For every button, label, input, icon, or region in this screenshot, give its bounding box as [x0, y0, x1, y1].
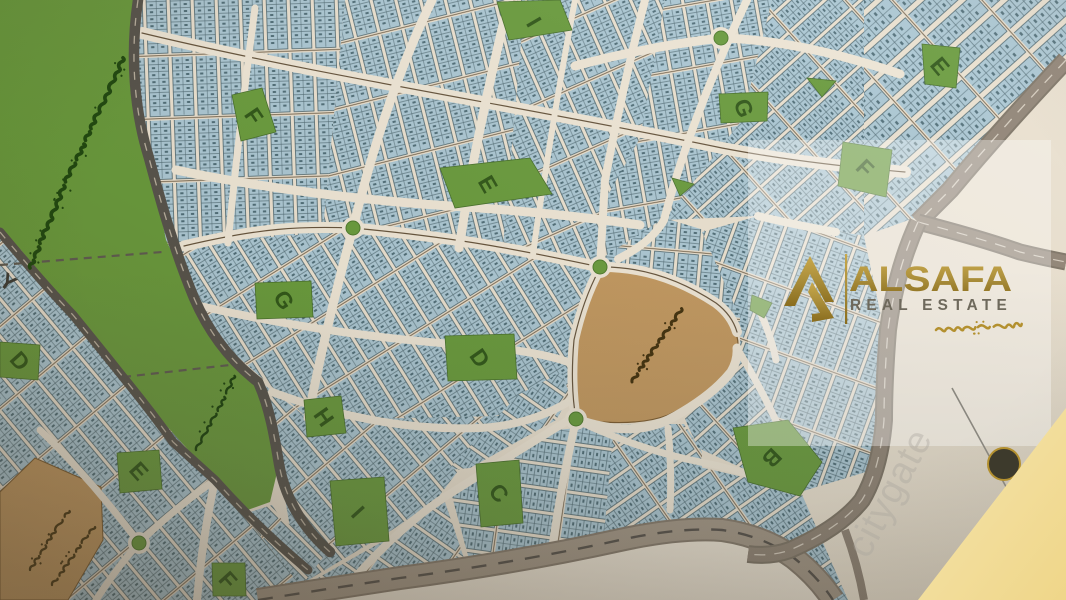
svg-text:ALSAFA: ALSAFA: [849, 260, 1012, 299]
svg-text:REAL ESTATE: REAL ESTATE: [850, 297, 1012, 314]
